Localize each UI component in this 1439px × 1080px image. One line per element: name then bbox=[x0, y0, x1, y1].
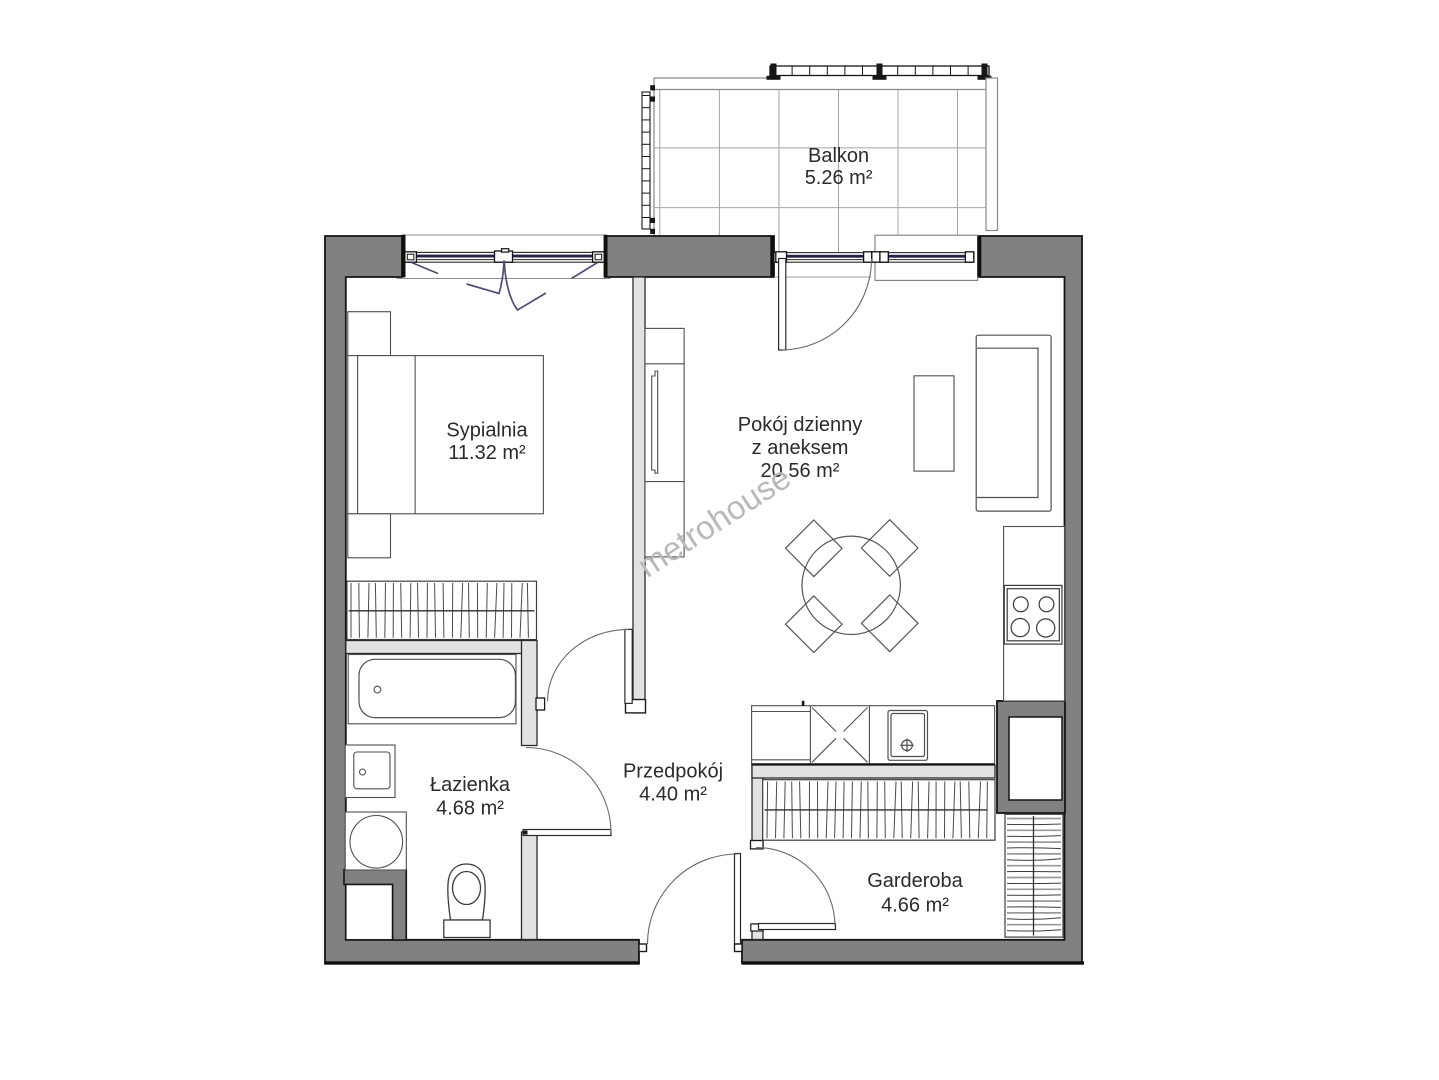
svg-text:z aneksem: z aneksem bbox=[752, 437, 849, 459]
svg-text:Garderoba: Garderoba bbox=[867, 870, 963, 892]
svg-text:Łazienka: Łazienka bbox=[430, 774, 511, 796]
svg-text:4.68 m²: 4.68 m² bbox=[436, 798, 504, 820]
svg-text:Przedpokój: Przedpokój bbox=[623, 761, 723, 783]
svg-text:4.40 m²: 4.40 m² bbox=[639, 784, 707, 806]
svg-text:Balkon: Balkon bbox=[808, 145, 869, 167]
svg-text:11.32 m²: 11.32 m² bbox=[448, 442, 526, 464]
svg-text:5.26 m²: 5.26 m² bbox=[805, 167, 873, 189]
svg-text:Sypialnia: Sypialnia bbox=[446, 420, 528, 442]
svg-text:Pokój dzienny: Pokój dzienny bbox=[738, 414, 863, 436]
svg-text:4.66 m²: 4.66 m² bbox=[881, 895, 949, 917]
